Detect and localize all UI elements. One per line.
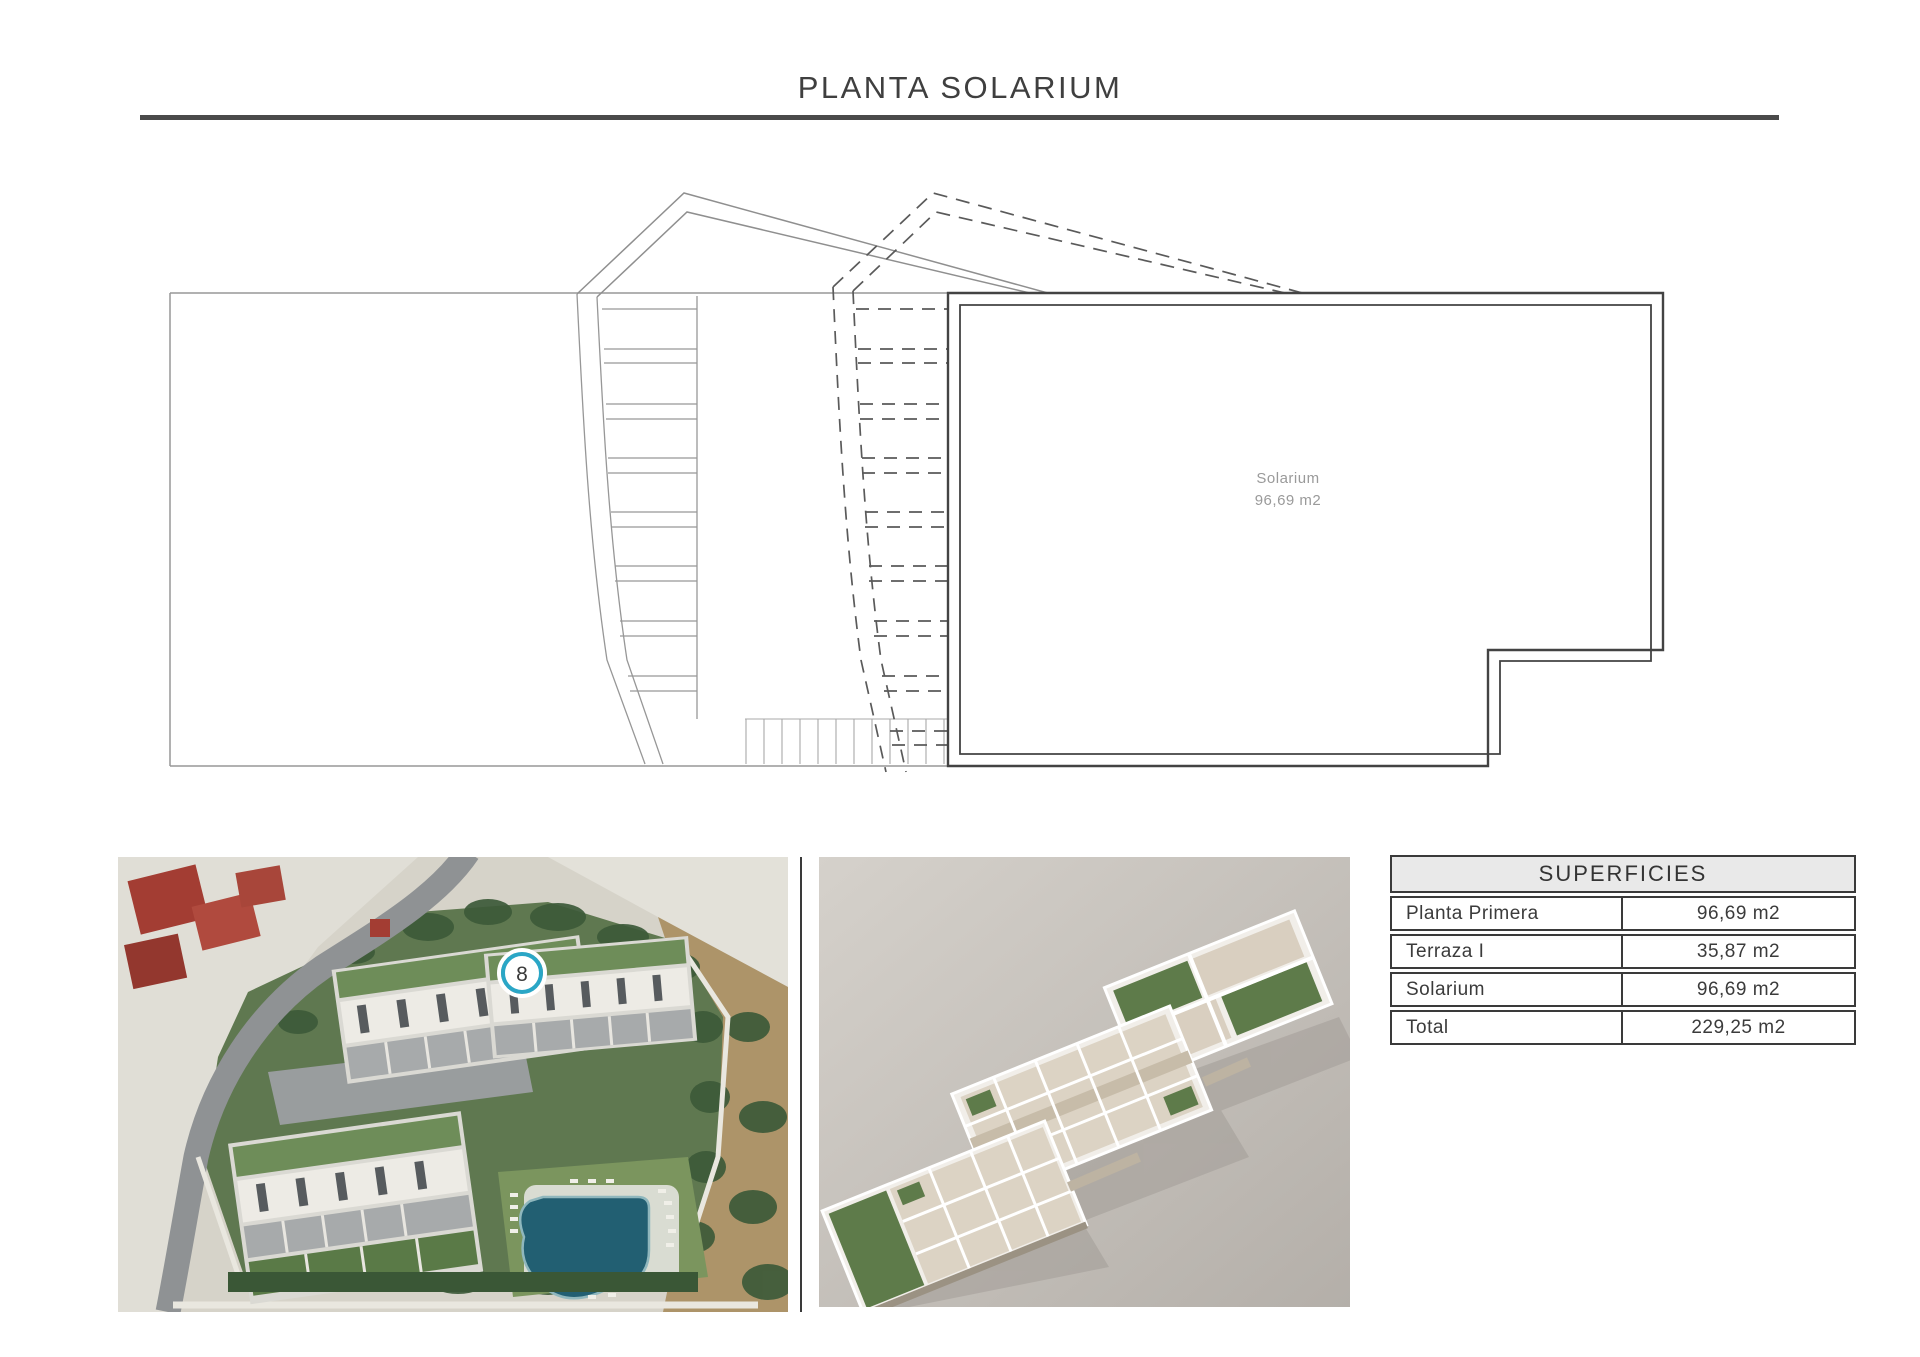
row-label: Terraza I	[1392, 936, 1623, 967]
row-label: Total	[1392, 1012, 1623, 1043]
badge-number: 8	[516, 963, 528, 986]
stairs-solid	[577, 294, 697, 764]
floor-plan-drawing: Solarium 96,69 m2	[100, 150, 1850, 830]
row-label: Solarium	[1392, 974, 1623, 1005]
row-value: 96,69 m2	[1623, 898, 1854, 929]
photo-divider	[800, 857, 802, 1312]
table-title: SUPERFICIES	[1390, 855, 1856, 893]
table-row: Solarium 96,69 m2	[1390, 972, 1856, 1007]
title-rule	[140, 115, 1779, 120]
row-value: 35,87 m2	[1623, 936, 1854, 967]
superficies-table: SUPERFICIES Planta Primera 96,69 m2 Terr…	[1390, 855, 1856, 1048]
hedge	[228, 1272, 698, 1292]
row-label: Planta Primera	[1392, 898, 1623, 929]
site-boundary	[170, 293, 948, 766]
aerial-photo: 8	[118, 857, 788, 1312]
roof-outline-solid	[577, 193, 1055, 298]
unit-badge: 8	[499, 950, 545, 996]
row-value: 229,25 m2	[1623, 1012, 1854, 1043]
roof-outline-dashed	[833, 193, 1306, 297]
brochure-page: PLANTA SOLARIUM	[0, 0, 1920, 1357]
room-area-label: 96,69 m2	[1255, 492, 1322, 509]
table-row: Total 229,25 m2	[1390, 1010, 1856, 1045]
pergola-hatching	[745, 719, 957, 764]
table-row: Planta Primera 96,69 m2	[1390, 896, 1856, 931]
page-title: PLANTA SOLARIUM	[0, 70, 1920, 106]
stairs-dashed	[833, 287, 947, 772]
row-value: 96,69 m2	[1623, 974, 1854, 1005]
solarium-outline: Solarium 96,69 m2	[948, 293, 1663, 766]
table-row: Terraza I 35,87 m2	[1390, 934, 1856, 969]
axon-photo	[819, 857, 1350, 1307]
room-label: Solarium	[1256, 470, 1319, 487]
